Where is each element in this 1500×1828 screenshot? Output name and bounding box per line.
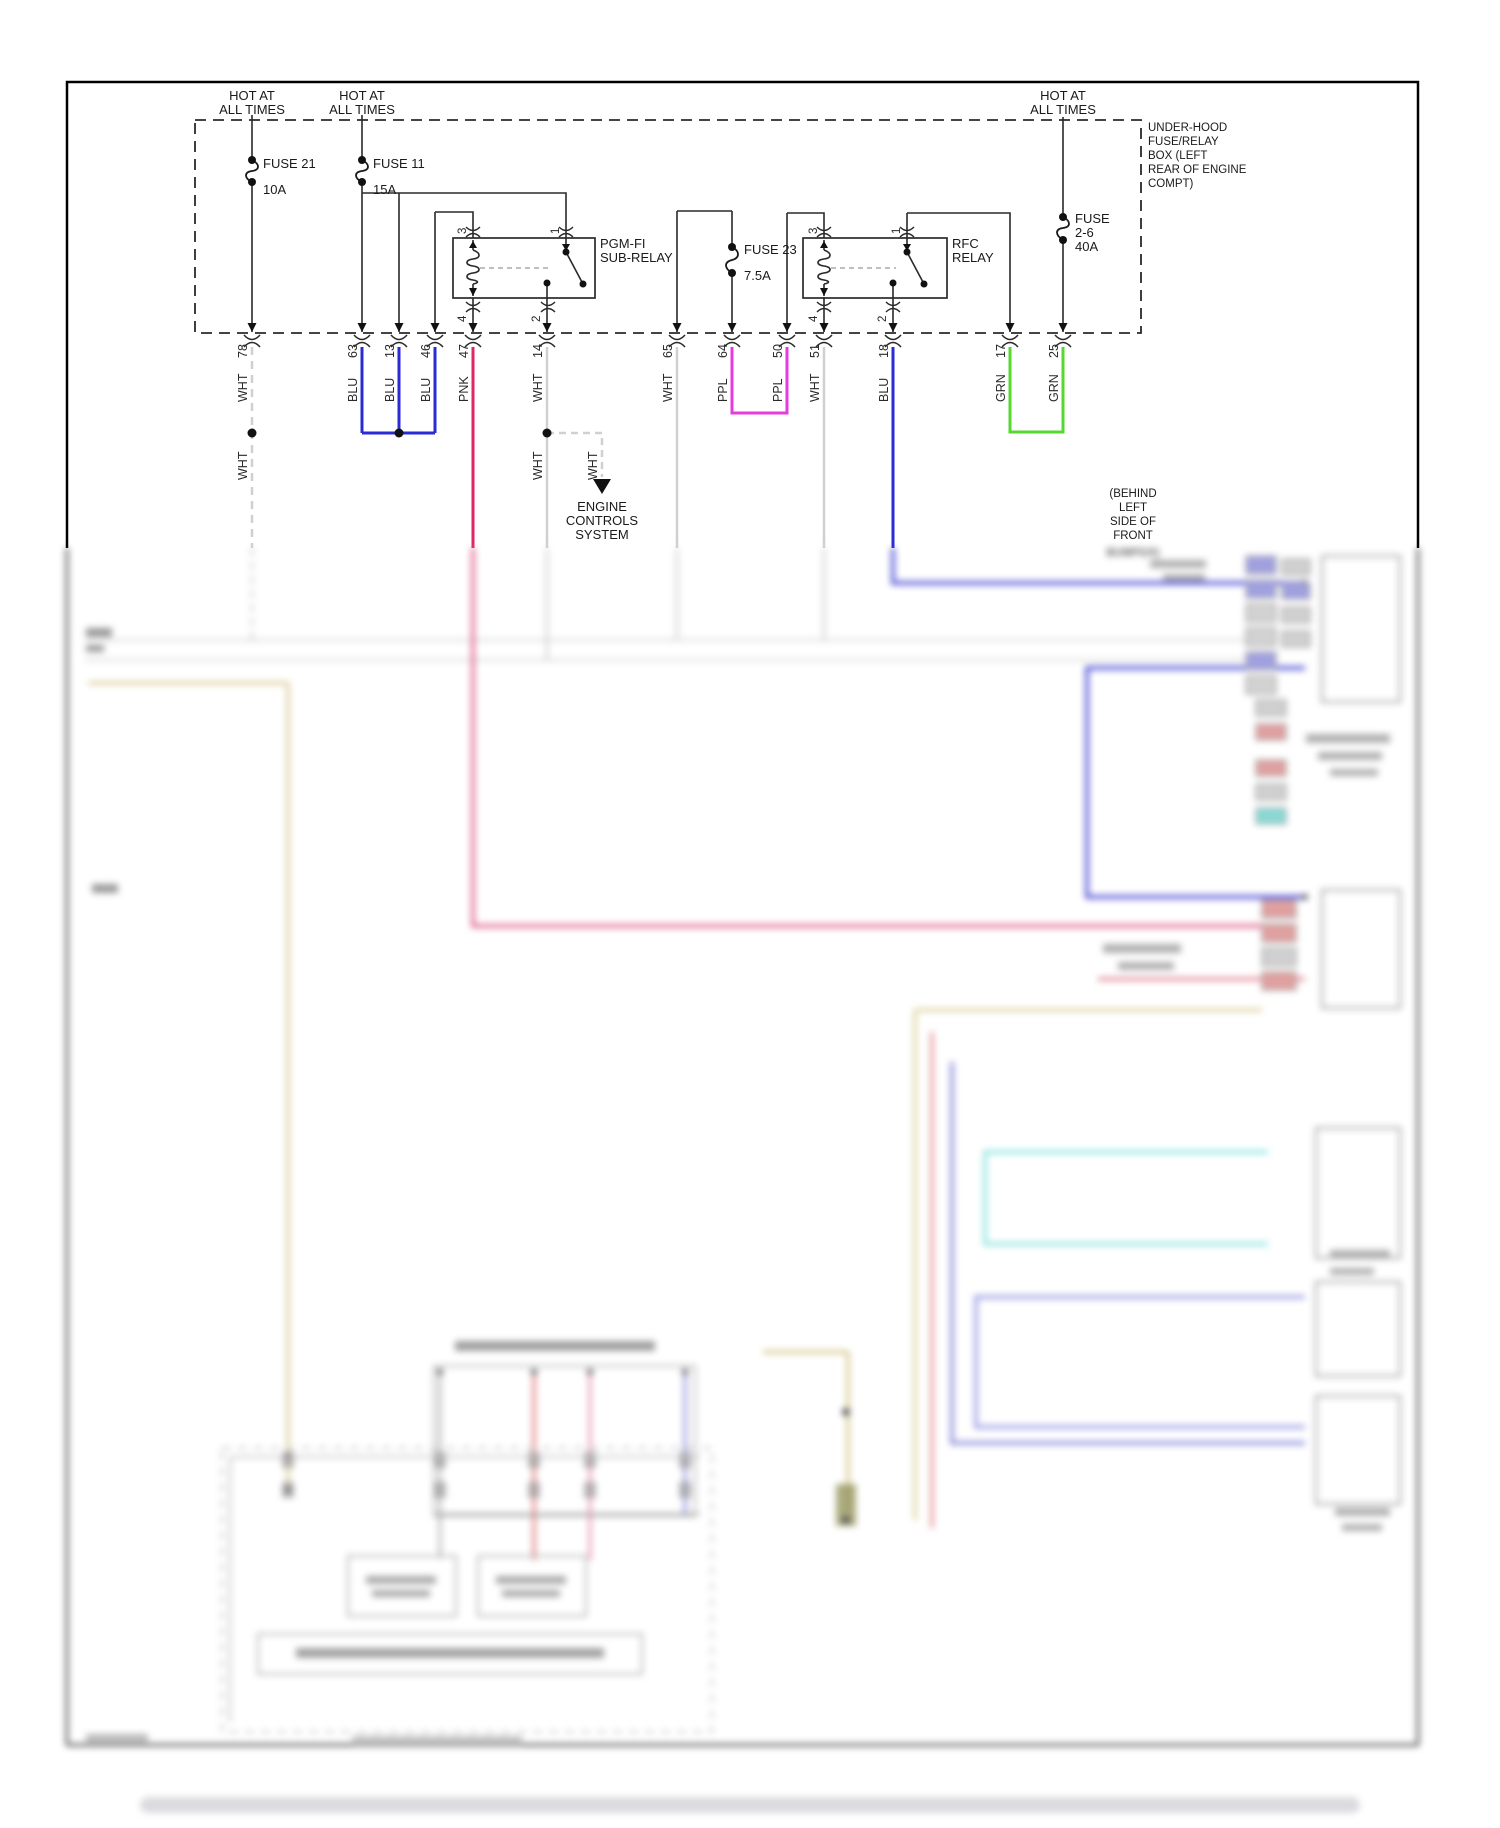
circuit-51-color: WHT <box>808 373 822 402</box>
rfc-relay-label-line1: RFC <box>952 236 979 251</box>
fuse-box-title-line2: FUSE/RELAY <box>1148 136 1219 148</box>
destination-line2: CONTROLS <box>566 513 639 528</box>
blue-wire-lower <box>952 1062 1305 1443</box>
location-note-line4: FRONT <box>1113 530 1153 542</box>
diagram-frame-lower <box>67 548 1418 1745</box>
relay-coil <box>818 250 830 284</box>
circuit-25-color: GRN <box>1047 374 1061 402</box>
circuit-13-color: BLU <box>383 378 397 402</box>
scrollbar[interactable] <box>140 1797 1360 1813</box>
power-label-3-line2: ALL TIMES <box>1030 102 1096 117</box>
power-label-1-line1: HOT AT <box>229 88 275 103</box>
splice-label-wht-1: WHT <box>236 451 250 480</box>
diagram-frame <box>67 82 1418 548</box>
rfc-pin-3: 3 <box>808 228 820 234</box>
circuit-64-number: 64 <box>716 344 730 358</box>
violet-wire-loop <box>976 1297 1305 1427</box>
fuse-23-label: FUSE 23 <box>744 242 797 257</box>
location-note-line3: SIDE OF <box>1110 516 1156 528</box>
circuit-78-number: 78 <box>236 344 250 358</box>
pgm-fi-pin-1: 1 <box>550 228 562 234</box>
relay-coil <box>467 250 479 284</box>
circuit-17-color: GRN <box>994 374 1008 402</box>
power-label-3-line1: HOT AT <box>1040 88 1086 103</box>
location-note-line5: BUMPER) <box>1106 548 1159 559</box>
fuse-2-6-rating: 40A <box>1075 239 1098 254</box>
circuit-50-color: PPL <box>771 378 785 402</box>
blu-wire-run-1 <box>893 548 1305 583</box>
splice-label-wht-3: WHT <box>586 451 600 480</box>
pgm-fi-pin-4: 4 <box>457 315 469 322</box>
circuit-63-color: BLU <box>346 378 360 402</box>
circuit-65-color: WHT <box>661 373 675 402</box>
pnk-wire-run <box>473 548 1262 926</box>
splice-dots <box>248 429 552 438</box>
destination-line1: ENGINE <box>577 499 627 514</box>
blurred-diagram-content: BUMPER) <box>0 548 1500 1828</box>
circuit-18-number: 18 <box>877 344 891 358</box>
blurred-text-blobs <box>1103 560 1390 1531</box>
circuit-14-number: 14 <box>531 344 545 358</box>
pgm-fi-pin-3: 3 <box>457 228 469 234</box>
blurred-lower-section: BUMPER) <box>0 548 1500 1828</box>
relay-pin-connector-arcs <box>466 227 914 312</box>
wht-wire-continuations <box>547 548 824 660</box>
circuit-14-color: WHT <box>531 373 545 402</box>
destination-line3: SYSTEM <box>575 527 628 542</box>
fuse-23-rating: 7.5A <box>744 268 771 283</box>
circuit-65-number: 65 <box>661 344 675 358</box>
fuse-11-label: FUSE 11 <box>373 156 425 171</box>
splice-label-wht-2: WHT <box>531 451 545 480</box>
fuse-21-label: FUSE 21 <box>263 156 316 171</box>
circuit-50-number: 50 <box>771 344 785 358</box>
cyan-wire-loop <box>985 1152 1268 1244</box>
internal-wires <box>252 115 1063 332</box>
fuse-box-title-line1: UNDER-HOOD <box>1148 122 1227 134</box>
pgm-fi-pin-2: 2 <box>531 316 543 322</box>
rfc-pin-4: 4 <box>808 315 820 322</box>
power-label-2-line1: HOT AT <box>339 88 385 103</box>
pgm-fi-relay-label-line1: PGM-FI <box>600 236 646 251</box>
circuit-47-color: PNK <box>457 376 471 402</box>
circuit-17-number: 17 <box>994 344 1008 358</box>
power-label-2-line2: ALL TIMES <box>329 102 395 117</box>
fuse-relay-box-outline <box>195 120 1141 333</box>
rfc-pin-1: 1 <box>891 228 903 234</box>
location-note-line1: (BEHIND <box>1109 488 1156 500</box>
circuit-25-number: 25 <box>1047 344 1061 358</box>
right-component-boxes <box>1316 556 1400 1504</box>
blur-junction-dots <box>284 580 1308 1524</box>
left-label-blobs <box>86 628 148 1742</box>
exit-arrowheads <box>248 323 1068 332</box>
circuit-18-color: BLU <box>877 378 891 402</box>
rfc-pin-2: 2 <box>877 316 889 322</box>
circuit-47-number: 47 <box>457 344 471 358</box>
circuit-51-number: 51 <box>808 344 822 358</box>
rfc-relay-label-line2: RELAY <box>952 250 994 265</box>
fuse-11-rating: 15A <box>373 182 396 197</box>
engine-controls-arrow-icon <box>593 479 611 494</box>
location-note-line2: LEFT <box>1119 502 1147 514</box>
gray-bus-wires <box>85 640 1250 660</box>
fuse-box-title-line4: REAR OF ENGINE <box>1148 164 1247 176</box>
circuit-78-color: WHT <box>236 373 250 402</box>
exit-connector-arcs <box>244 335 1071 347</box>
circuit-13-number: 13 <box>383 344 397 358</box>
rfc-relay <box>803 238 947 298</box>
wiring-diagram-page: HOT AT ALL TIMES HOT AT ALL TIMES HOT AT… <box>0 0 1500 1828</box>
circuit-64-color: PPL <box>716 378 730 402</box>
power-label-1-line2: ALL TIMES <box>219 102 285 117</box>
circuit-63-number: 63 <box>346 344 360 358</box>
center-component-assembly <box>222 1341 712 1745</box>
fuse-2-6-label2: 2-6 <box>1075 225 1094 240</box>
circuit-46-color: BLU <box>419 378 433 402</box>
circuit-46-number: 46 <box>419 344 433 358</box>
wiring-diagram-sharp-section: HOT AT ALL TIMES HOT AT ALL TIMES HOT AT… <box>0 0 1500 548</box>
fuse-box-title-line3: BOX (LEFT <box>1148 150 1207 162</box>
fuse-21-rating: 10A <box>263 182 286 197</box>
fuse-2-6-label: FUSE <box>1075 211 1110 226</box>
fuse-box-title-line5: COMPT) <box>1148 178 1194 190</box>
tan-wire-left <box>88 683 288 1492</box>
pgm-fi-relay-label-line2: SUB-RELAY <box>600 250 673 265</box>
tan-wire-bottom <box>763 1352 848 1512</box>
pgm-fi-sub-relay <box>453 238 595 298</box>
